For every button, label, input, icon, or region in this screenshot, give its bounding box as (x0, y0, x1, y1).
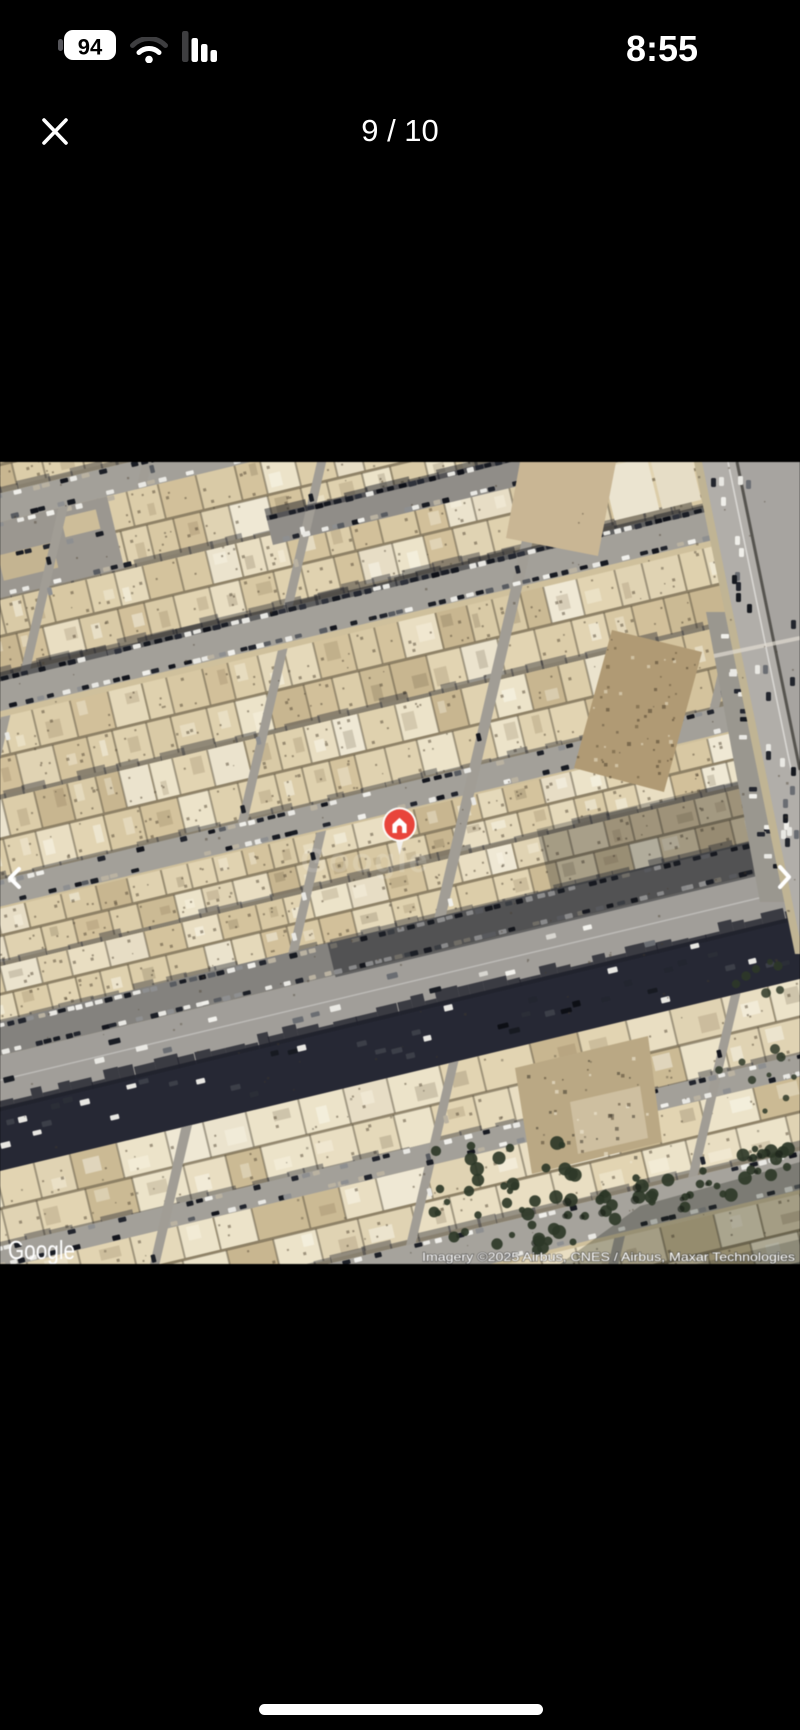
svg-text:94: 94 (78, 35, 103, 60)
